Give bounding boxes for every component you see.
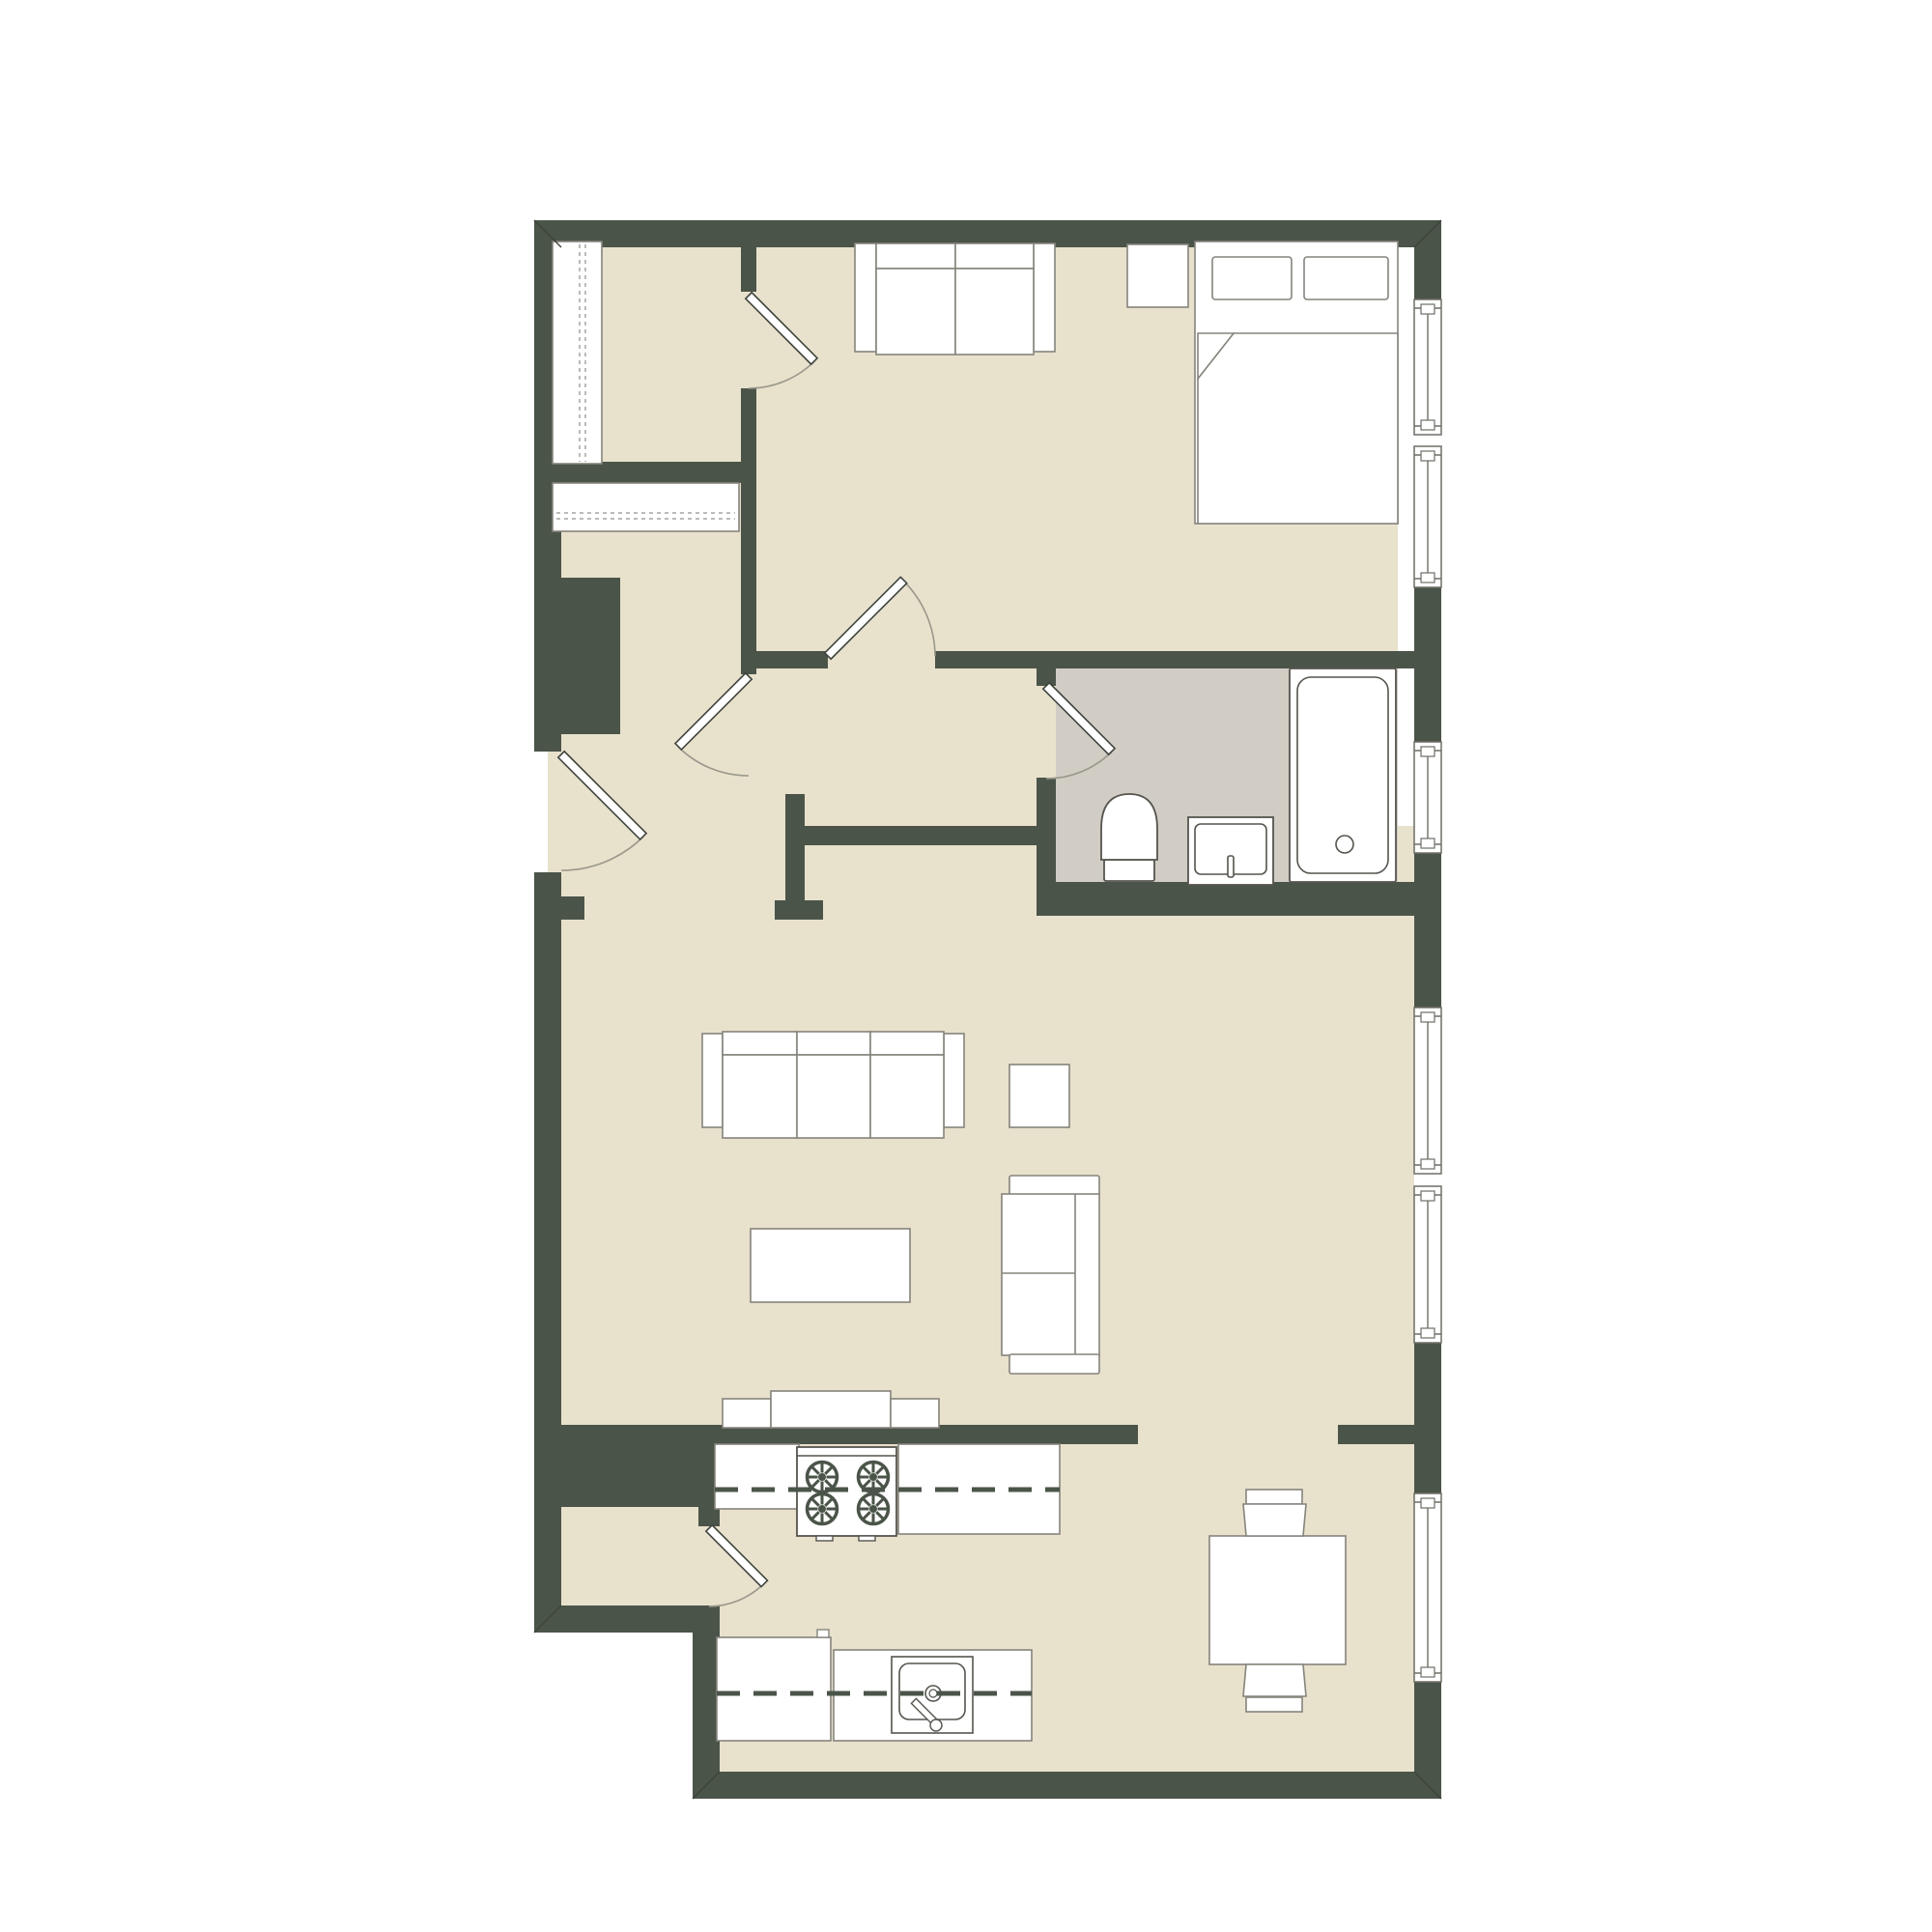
wall-left-lower bbox=[534, 872, 561, 1633]
bedroom-sofa-armrest-right bbox=[1034, 243, 1055, 352]
burner-4-center bbox=[869, 1505, 877, 1513]
hall-shelf bbox=[553, 483, 739, 531]
bedroom-sofa-back-right bbox=[955, 243, 1034, 269]
wall-closet-bottom bbox=[534, 462, 756, 483]
dining-chair-bottom-seat bbox=[1243, 1664, 1306, 1696]
wall-right-e bbox=[1414, 1682, 1441, 1772]
living-sofa-back-1 bbox=[723, 1032, 797, 1055]
living-sofa-seat-1 bbox=[723, 1055, 797, 1138]
window-bathroom-stop-bottom bbox=[1421, 838, 1435, 848]
wall-right-a bbox=[1414, 247, 1441, 299]
window-living-2-stop-top bbox=[1421, 1191, 1435, 1201]
window-living-1-stop-top bbox=[1421, 1012, 1435, 1022]
dining-chair-top-seat bbox=[1243, 1504, 1306, 1536]
burner-3-center bbox=[818, 1505, 826, 1513]
wall-pier bbox=[561, 896, 584, 920]
bed-pillow-right bbox=[1304, 257, 1388, 299]
kitchen-faucet-inner bbox=[929, 1690, 937, 1697]
window-living-1-stop-bottom bbox=[1421, 1159, 1435, 1169]
wall-closet-right-lower bbox=[741, 388, 756, 462]
floor-plan-page bbox=[0, 0, 1932, 1932]
nightstand bbox=[1127, 244, 1188, 307]
wall-step-bottom bbox=[534, 1605, 720, 1633]
living-sofa-armrest-left bbox=[702, 1034, 723, 1127]
wall-bottom bbox=[693, 1772, 1441, 1799]
wall-bedroom-bottom-left bbox=[756, 651, 828, 668]
wall-bedroom-bottom-right bbox=[935, 651, 1414, 668]
fridge-handle bbox=[817, 1630, 829, 1637]
wall-step-vertical bbox=[693, 1605, 720, 1799]
window-bedroom-2-stop-bottom bbox=[1421, 573, 1435, 582]
wall-t-vertical bbox=[785, 794, 805, 900]
armchair-armrest-top bbox=[1009, 1176, 1099, 1195]
living-sofa-armrest-right bbox=[944, 1034, 964, 1127]
wall-right-d bbox=[1414, 1343, 1441, 1493]
wall-closet-right-upper bbox=[741, 247, 756, 292]
living-sofa-back-3 bbox=[870, 1032, 944, 1055]
bed-pillow-left bbox=[1212, 257, 1292, 299]
wall-right-b bbox=[1414, 587, 1441, 742]
window-bedroom-1-stop-bottom bbox=[1421, 420, 1435, 430]
burner-1-center bbox=[818, 1473, 826, 1481]
wall-bath-bottom bbox=[1037, 882, 1414, 916]
dining-table bbox=[1209, 1536, 1346, 1664]
side-table bbox=[1009, 1065, 1069, 1127]
bedroom-sofa-seat-left bbox=[876, 269, 955, 355]
dining-chair-bottom-back bbox=[1246, 1697, 1302, 1712]
burner-2-center bbox=[869, 1473, 877, 1481]
bath-sink-faucet bbox=[1228, 856, 1234, 877]
wall-closet-ll-stub bbox=[698, 1507, 720, 1526]
wall-hall-right bbox=[741, 483, 756, 674]
window-dining-stop-bottom bbox=[1421, 1667, 1435, 1677]
window-bedroom-1-stop-top bbox=[1421, 304, 1435, 314]
stove-foot-right bbox=[859, 1536, 875, 1541]
bed-blanket bbox=[1198, 333, 1398, 524]
tv-console-left bbox=[723, 1399, 771, 1428]
bedroom-sofa-seat-right bbox=[955, 269, 1034, 355]
living-sofa-seat-2 bbox=[797, 1055, 870, 1138]
stove-foot-left bbox=[816, 1536, 833, 1541]
bathtub-drain bbox=[1336, 836, 1353, 853]
kitchen-counter-top-left bbox=[715, 1444, 799, 1509]
wardrobe bbox=[553, 241, 602, 464]
wall-corridor-bottom bbox=[805, 826, 1037, 845]
window-dining-stop-top bbox=[1421, 1498, 1435, 1508]
wall-right-c bbox=[1414, 853, 1441, 1008]
apartment-floor-plan bbox=[0, 0, 1932, 1932]
living-sofa-back-2 bbox=[797, 1032, 870, 1055]
window-living-2-stop-bottom bbox=[1421, 1328, 1435, 1338]
bedroom-sofa-armrest-left bbox=[855, 243, 876, 352]
tv-console-center bbox=[771, 1391, 891, 1428]
armchair-armrest-bottom bbox=[1009, 1354, 1099, 1374]
wall-living-kitchen-right bbox=[1338, 1425, 1414, 1444]
wall-t-foot bbox=[775, 900, 823, 920]
kitchen-faucet-knob bbox=[930, 1719, 942, 1731]
dining-chair-top-back bbox=[1246, 1490, 1302, 1504]
tv-console-right bbox=[891, 1399, 939, 1428]
window-bathroom-stop-top bbox=[1421, 747, 1435, 756]
bedroom-sofa-back-left bbox=[876, 243, 955, 269]
coffee-table bbox=[751, 1229, 910, 1302]
wall-bath-left-upper bbox=[1037, 668, 1056, 686]
living-sofa-seat-3 bbox=[870, 1055, 944, 1138]
wall-thick-mass bbox=[534, 1444, 715, 1507]
fridge bbox=[717, 1637, 831, 1741]
wall-bath-left-lower bbox=[1037, 778, 1056, 882]
toilet-tank bbox=[1104, 860, 1154, 881]
wall-entry-block bbox=[561, 578, 620, 734]
armchair-body bbox=[1002, 1194, 1099, 1355]
toilet-bowl bbox=[1101, 794, 1157, 860]
window-bedroom-2-stop-top bbox=[1421, 451, 1435, 461]
